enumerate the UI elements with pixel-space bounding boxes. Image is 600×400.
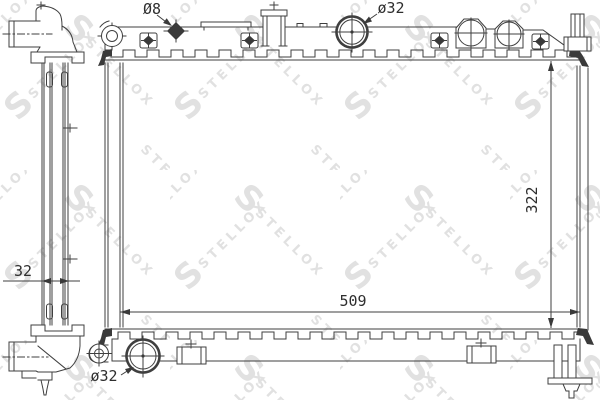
screw-boss (241, 33, 258, 48)
screw-boss (431, 33, 448, 48)
dim-height-label: 322 (523, 186, 541, 213)
radiator-technical-drawing: S STELLOX S STELLOX STELLOX STELLOX (0, 0, 600, 400)
edge-tab (320, 24, 327, 28)
dim-thickness-label: 32 (14, 262, 32, 280)
hole-8-label: Ø8 (143, 0, 161, 18)
screw-boss (140, 33, 157, 48)
dim-width-label: 509 (339, 292, 366, 310)
drawing-svg: S STELLOX S STELLOX STELLOX STELLOX (0, 0, 600, 400)
screw-boss (532, 34, 549, 49)
outlet-32-label: ø32 (90, 367, 117, 385)
inlet-32-label: ø32 (377, 0, 404, 17)
edge-tab (297, 24, 303, 28)
